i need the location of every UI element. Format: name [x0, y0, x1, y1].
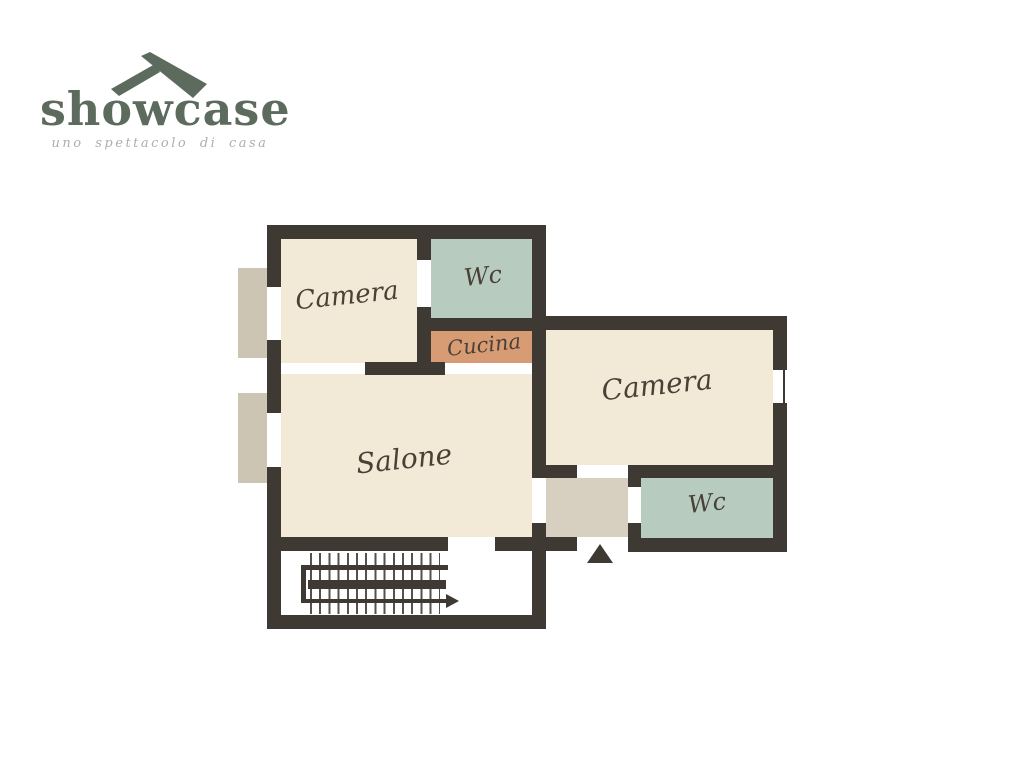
wall-segment	[628, 538, 787, 552]
logo-tagline: uno spettacolo di casa	[40, 136, 280, 151]
room-label-wc-1: Wc	[463, 260, 504, 292]
wall-segment	[495, 537, 577, 551]
balcony-1	[238, 268, 267, 358]
wall-segment	[546, 465, 577, 478]
wall-segment	[267, 615, 546, 629]
wall-segment	[773, 403, 787, 548]
room-label-wc-2: Wc	[687, 487, 728, 519]
hall-floor	[546, 478, 628, 537]
entry-triangle-up-icon	[587, 544, 613, 563]
floor-plan-page: showcase uno spettacolo di casa Camera W…	[0, 0, 1024, 768]
wall-segment	[628, 523, 641, 538]
wall-segment	[267, 340, 281, 413]
stairs-rail	[301, 565, 448, 570]
wall-segment	[267, 225, 281, 287]
wall-segment	[532, 225, 546, 478]
stairs-rail-connector	[301, 565, 306, 603]
balcony-2	[238, 393, 267, 483]
logo: showcase uno spettacolo di casa	[40, 44, 280, 151]
roof-icon	[102, 48, 212, 100]
stairs-arrow-line	[301, 599, 448, 603]
stairs-arrow-right-icon	[446, 594, 459, 608]
wall-segment	[267, 225, 546, 239]
wall-segment	[281, 537, 448, 551]
wall-segment	[773, 316, 787, 370]
stairs-landing-bar	[308, 580, 446, 589]
wall-segment	[546, 316, 787, 330]
wall-segment	[417, 239, 431, 260]
wall-segment	[628, 465, 773, 478]
wall-segment	[365, 362, 445, 375]
window-line	[783, 370, 785, 403]
wall-segment	[267, 467, 281, 629]
wall-segment	[628, 465, 641, 487]
